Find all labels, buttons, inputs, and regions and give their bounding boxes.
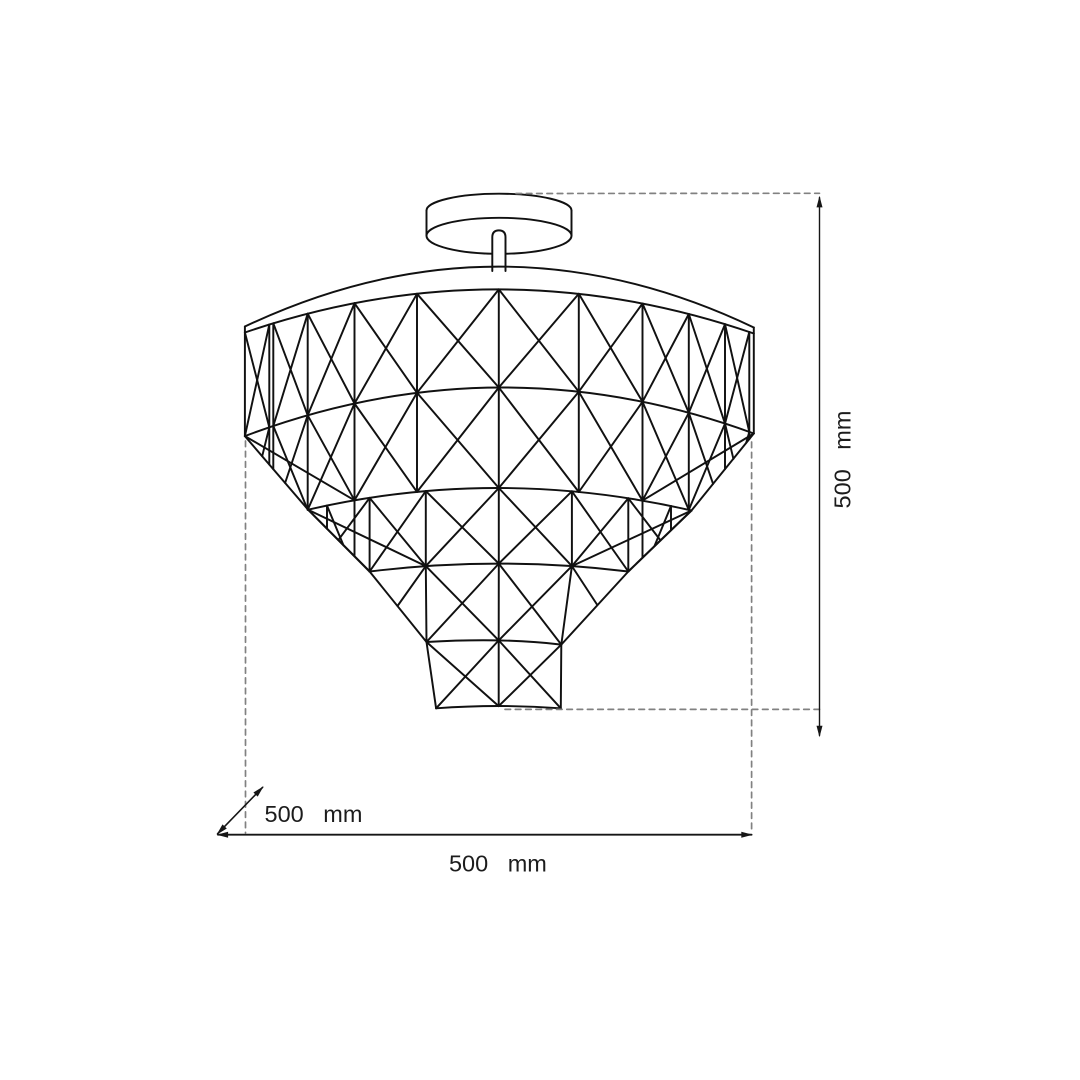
svg-text:500 mm: 500 mm (265, 801, 363, 827)
svg-text:500 mm: 500 mm (449, 851, 547, 877)
svg-text:500 mm: 500 mm (830, 411, 856, 509)
